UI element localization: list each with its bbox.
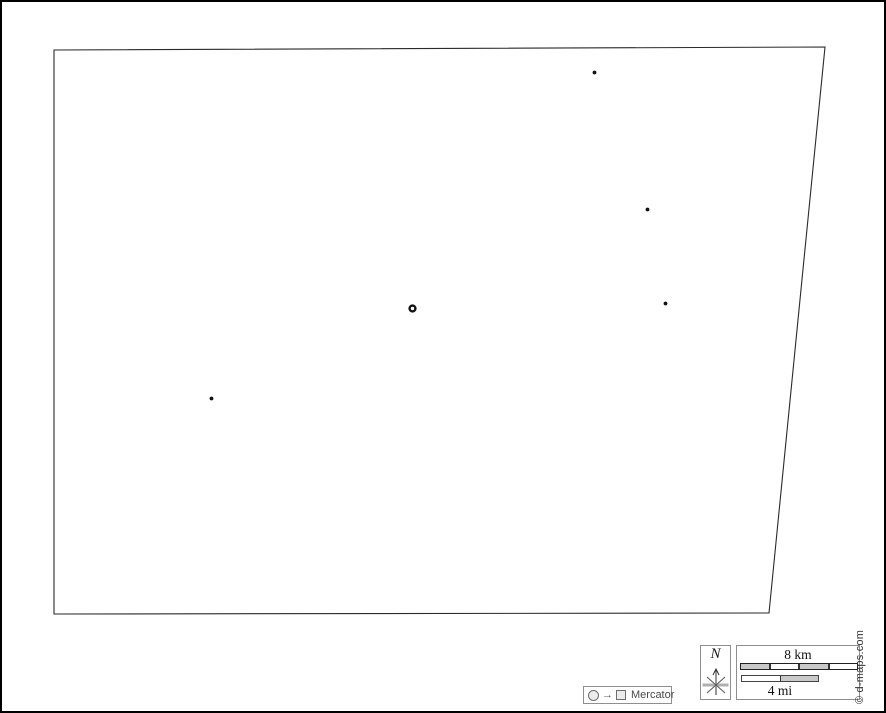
north-arrow-icon — [701, 664, 730, 698]
city-marker — [646, 208, 650, 212]
scale-bar-panel: 8 km 4 mi — [736, 645, 860, 700]
km-scale-bar — [740, 663, 858, 670]
mi-scale-bar — [741, 675, 819, 682]
north-label: N — [701, 647, 730, 662]
scale-segment — [780, 676, 819, 681]
scale-segment — [742, 676, 780, 681]
compass-rose: N — [700, 645, 731, 700]
city-marker — [210, 397, 214, 401]
scale-mi-label: 4 mi — [741, 683, 819, 699]
projection-legend: → Mercator — [583, 686, 672, 704]
city-marker — [664, 302, 668, 306]
map-page: → Mercator N 8 km 4 mi © d-maps.com — [0, 0, 886, 713]
map-svg — [2, 2, 884, 711]
scale-km-label: 8 km — [737, 647, 859, 663]
square-symbol-icon — [616, 690, 626, 700]
scale-segment — [741, 664, 769, 669]
circle-symbol-icon — [588, 690, 599, 701]
scale-segment — [769, 664, 799, 669]
projection-label: Mercator — [629, 690, 674, 701]
arrow-right-icon: → — [602, 690, 613, 701]
copyright-credit: © d-maps.com — [854, 630, 866, 704]
city-marker — [593, 71, 597, 75]
scale-segment — [798, 664, 828, 669]
map-boundary — [54, 47, 825, 614]
scale-segment — [828, 664, 858, 669]
